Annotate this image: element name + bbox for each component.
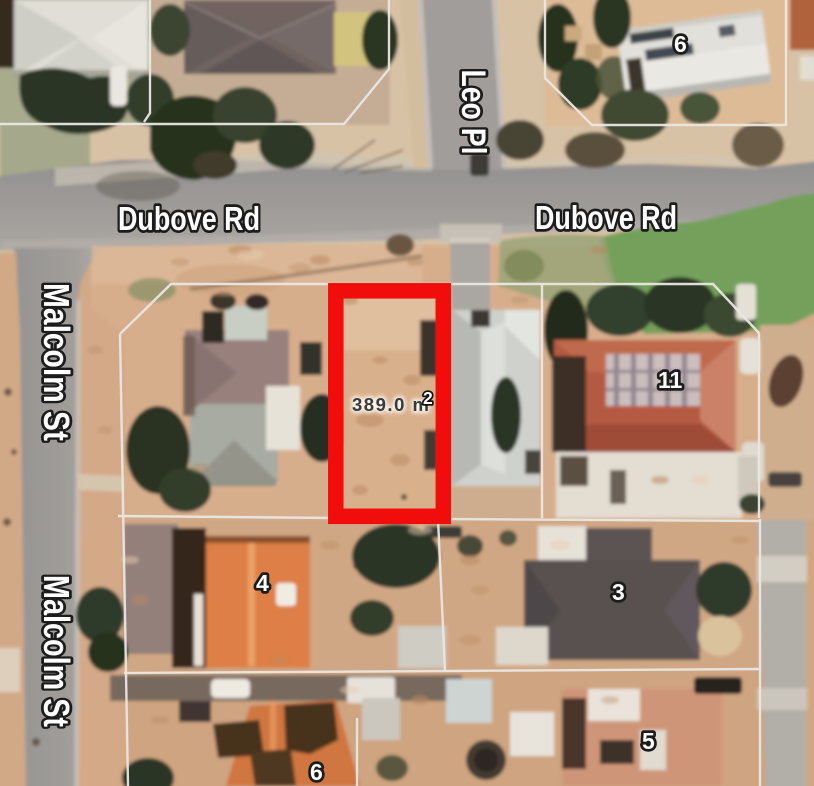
svg-text:6: 6 xyxy=(310,759,323,785)
svg-text:Leo Pl: Leo Pl xyxy=(454,70,492,155)
svg-text:4: 4 xyxy=(256,570,269,596)
svg-text:11: 11 xyxy=(658,367,683,393)
svg-text:6: 6 xyxy=(674,31,687,57)
svg-text:Dubove Rd: Dubove Rd xyxy=(535,199,677,236)
svg-text:Malcolm St: Malcolm St xyxy=(36,283,77,441)
svg-text:5: 5 xyxy=(642,728,655,754)
svg-text:3: 3 xyxy=(612,579,625,605)
svg-text:2: 2 xyxy=(423,388,433,408)
svg-text:389.0 m: 389.0 m xyxy=(352,394,429,415)
svg-text:Malcolm St: Malcolm St xyxy=(36,575,77,727)
svg-text:Dubove Rd: Dubove Rd xyxy=(118,200,260,237)
